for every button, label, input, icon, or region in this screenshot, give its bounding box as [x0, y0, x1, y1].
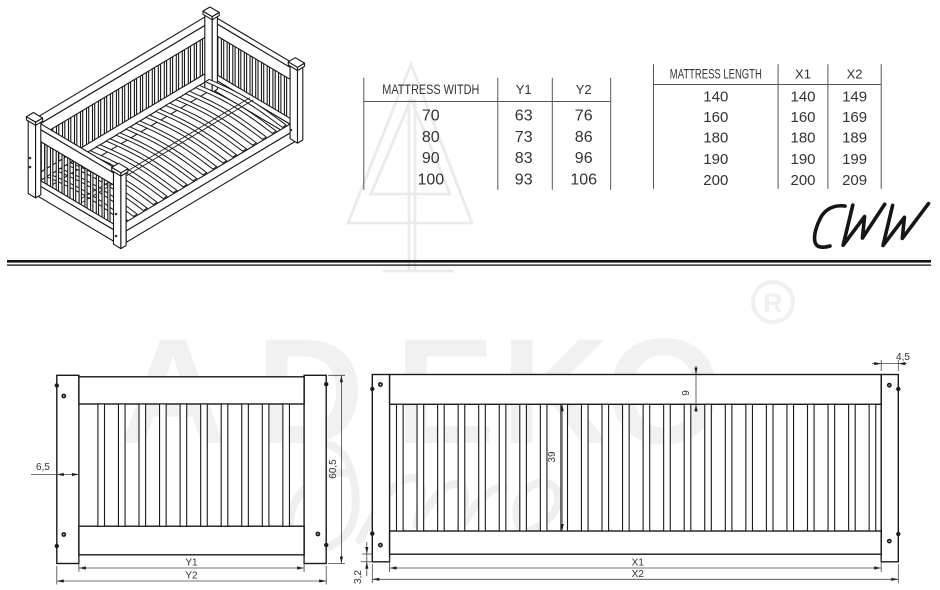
svg-text:200: 200 [790, 172, 815, 189]
svg-text:169: 169 [842, 109, 867, 126]
svg-text:X1: X1 [795, 67, 811, 82]
svg-text:160: 160 [703, 109, 728, 126]
svg-text:39: 39 [547, 451, 558, 463]
svg-text:73: 73 [515, 129, 533, 146]
svg-text:200: 200 [703, 172, 728, 189]
svg-text:80: 80 [422, 129, 440, 146]
svg-text:9: 9 [681, 390, 692, 396]
svg-text:93: 93 [515, 172, 533, 189]
svg-text:76: 76 [575, 107, 593, 124]
svg-text:3,2: 3,2 [353, 570, 364, 584]
svg-text:R: R [763, 288, 783, 318]
svg-text:189: 189 [842, 130, 867, 147]
svg-text:Y2: Y2 [185, 571, 198, 582]
svg-text:190: 190 [703, 151, 728, 168]
svg-text:Y1: Y1 [516, 82, 532, 97]
svg-text:6,5: 6,5 [36, 462, 50, 473]
svg-text:86: 86 [575, 129, 593, 146]
svg-text:60,5: 60,5 [328, 459, 339, 479]
svg-text:4,5: 4,5 [896, 352, 910, 363]
svg-text:140: 140 [790, 88, 815, 105]
svg-text:X2: X2 [847, 67, 863, 82]
svg-text:190: 190 [790, 151, 815, 168]
svg-text:Y2: Y2 [576, 82, 592, 97]
svg-text:63: 63 [515, 107, 533, 124]
svg-text:83: 83 [515, 150, 533, 167]
svg-text:160: 160 [790, 109, 815, 126]
svg-text:100: 100 [417, 172, 444, 189]
svg-text:149: 149 [842, 88, 867, 105]
svg-text:209: 209 [842, 172, 867, 189]
svg-text:180: 180 [703, 130, 728, 147]
svg-text:X2: X2 [632, 569, 645, 580]
svg-text:Y1: Y1 [185, 558, 198, 569]
svg-text:MATTRESS LENGTH: MATTRESS LENGTH [670, 67, 762, 82]
svg-text:199: 199 [842, 151, 867, 168]
svg-text:90: 90 [422, 150, 440, 167]
svg-text:106: 106 [570, 172, 597, 189]
svg-text:140: 140 [703, 88, 728, 105]
svg-text:180: 180 [790, 130, 815, 147]
svg-text:96: 96 [575, 150, 593, 167]
svg-text:70: 70 [422, 107, 440, 124]
svg-text:X1: X1 [632, 558, 645, 569]
svg-text:MATTRESS WITDH: MATTRESS WITDH [382, 82, 479, 97]
